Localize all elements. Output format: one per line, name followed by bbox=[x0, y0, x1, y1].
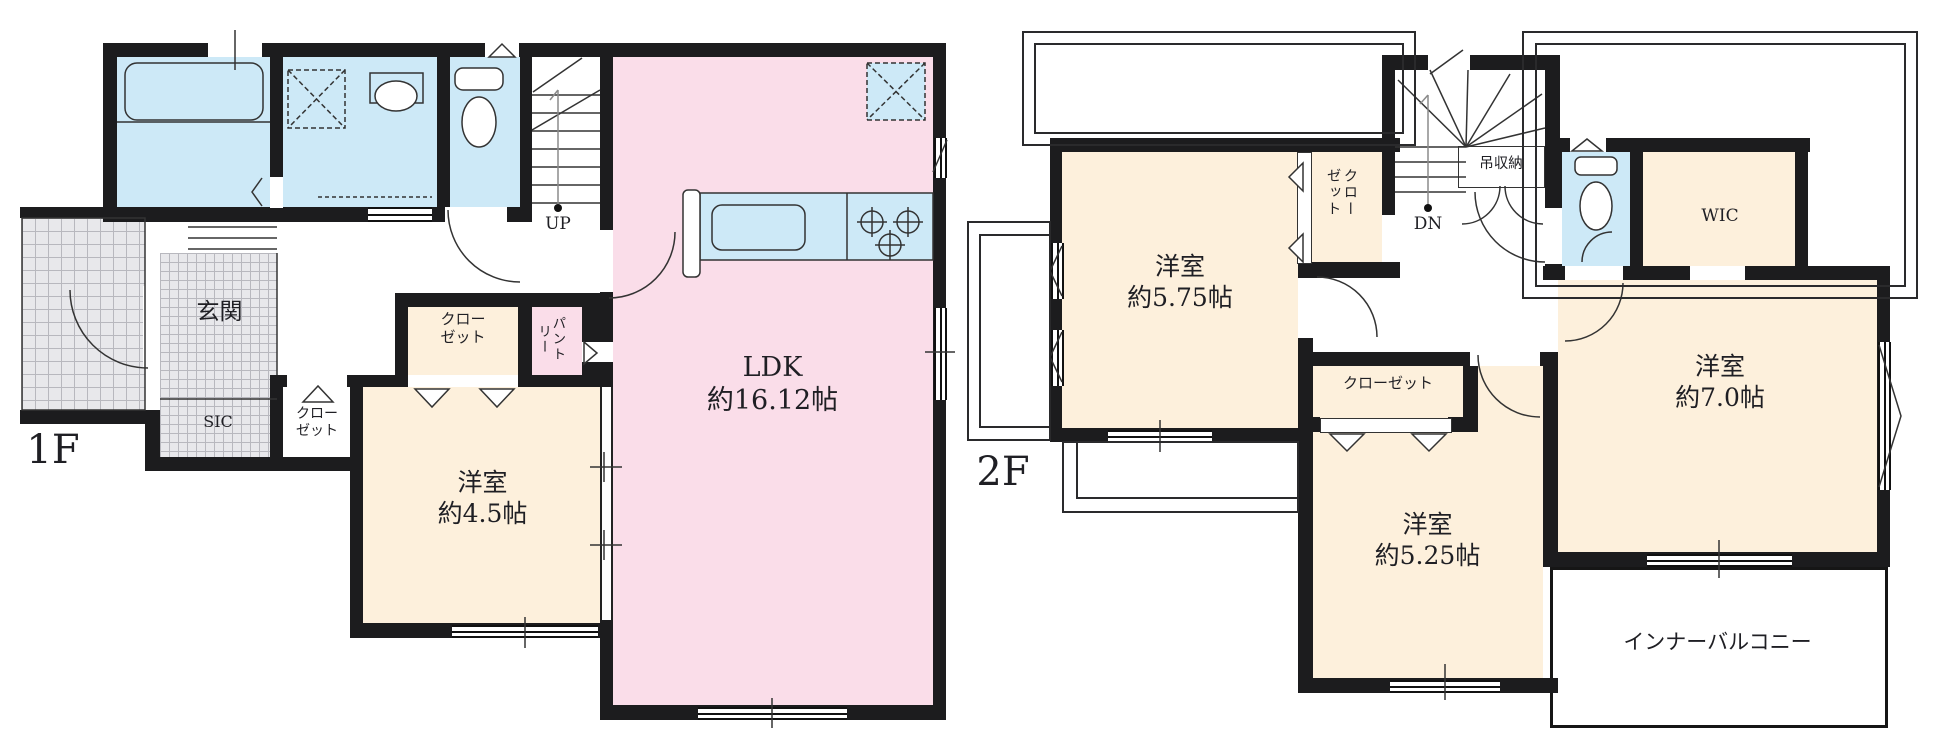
room45-closet-label: クロー ゼット bbox=[408, 310, 518, 347]
floor-2-label: 2F bbox=[968, 448, 1038, 497]
wall bbox=[1448, 417, 1478, 432]
closet575-label: クローゼット bbox=[1324, 162, 1357, 224]
room45-label: 洋室 約4.5帖 bbox=[395, 468, 570, 529]
door-opening bbox=[1298, 278, 1312, 338]
sliding-door bbox=[368, 207, 432, 222]
door-opening bbox=[600, 230, 613, 292]
room525-label: 洋室 約5.25帖 bbox=[1340, 510, 1515, 571]
window bbox=[934, 138, 947, 178]
window bbox=[452, 625, 598, 638]
stairs-dn-label: DN bbox=[1398, 214, 1458, 235]
inner-balcony-label: インナーバルコニー bbox=[1585, 630, 1850, 656]
sliding-partition bbox=[600, 387, 613, 620]
window bbox=[1647, 554, 1792, 567]
window bbox=[485, 43, 519, 57]
hall-closet-label: クロー ゼット bbox=[281, 406, 353, 440]
wall bbox=[20, 207, 150, 218]
hanging-storage-doors bbox=[1462, 186, 1543, 224]
vent-window bbox=[1570, 138, 1606, 152]
room70-label: 洋室 約7.0帖 bbox=[1630, 352, 1810, 413]
room-yoshitsu-70 bbox=[1558, 280, 1877, 552]
door-leaf bbox=[143, 286, 158, 368]
toilet2f-door-arc bbox=[1475, 192, 1545, 262]
hanging-storage-label: 吊収納 bbox=[1459, 156, 1543, 174]
closet-door bbox=[408, 375, 518, 387]
closet-door bbox=[287, 375, 347, 387]
pantry-door bbox=[582, 342, 613, 362]
stairs-1f-icon bbox=[532, 58, 600, 212]
wall bbox=[1543, 352, 1558, 567]
wall bbox=[1050, 138, 1400, 152]
wall bbox=[518, 293, 532, 375]
wall bbox=[520, 57, 532, 208]
room575-label: 洋室 約5.75帖 bbox=[1090, 252, 1270, 313]
floor-1-label: 1F bbox=[18, 426, 88, 475]
door-opening bbox=[445, 207, 507, 222]
wall bbox=[1382, 55, 1395, 215]
room575-door-arc bbox=[1317, 277, 1377, 337]
pantry-label: パントリー bbox=[536, 310, 564, 368]
sic-label: SIC bbox=[168, 412, 268, 432]
wall bbox=[1545, 152, 1562, 208]
door-opening bbox=[1470, 352, 1540, 366]
window bbox=[1108, 430, 1212, 443]
wall bbox=[600, 292, 613, 375]
wall bbox=[20, 410, 160, 424]
door-opening bbox=[1690, 266, 1745, 280]
wall bbox=[270, 375, 287, 387]
window bbox=[1878, 342, 1891, 490]
door-opening bbox=[270, 177, 283, 208]
closet-door bbox=[1297, 152, 1312, 264]
door-opening bbox=[1565, 266, 1623, 280]
room-porch bbox=[22, 218, 145, 410]
window bbox=[1428, 55, 1470, 70]
wall bbox=[1630, 152, 1643, 266]
closet-fold-mark bbox=[303, 386, 333, 402]
wall bbox=[103, 43, 117, 208]
wic-label: WIC bbox=[1675, 206, 1765, 227]
room-toilet-2f bbox=[1562, 152, 1630, 266]
window bbox=[1051, 243, 1064, 299]
ldk-label: LDK 約16.12帖 bbox=[660, 352, 885, 418]
wall bbox=[1298, 417, 1320, 432]
room-toilet-1f bbox=[450, 57, 520, 207]
window bbox=[1390, 680, 1500, 693]
stairs-2f-icon bbox=[1395, 70, 1545, 212]
wall bbox=[145, 457, 353, 471]
kitchen-counter bbox=[700, 193, 933, 260]
window bbox=[1051, 330, 1064, 386]
closet-door bbox=[1320, 418, 1452, 433]
wall bbox=[1298, 264, 1312, 278]
wall bbox=[437, 57, 450, 208]
wall bbox=[395, 293, 408, 387]
floorplan-canvas: 1F 玄関 SIC クロー ゼット クロー ゼット パントリー UP LDK 約… bbox=[0, 0, 1939, 753]
wall bbox=[1795, 152, 1808, 280]
wall bbox=[1463, 366, 1478, 417]
wall bbox=[1298, 338, 1313, 693]
wall bbox=[1312, 262, 1400, 278]
refrigerator-space bbox=[867, 63, 925, 120]
genkan-label: 玄関 bbox=[162, 298, 277, 326]
closet525-label: クローゼット bbox=[1318, 374, 1458, 392]
wall bbox=[395, 293, 613, 307]
wall bbox=[1382, 55, 1560, 70]
wall bbox=[600, 57, 613, 230]
room-bathroom bbox=[117, 57, 270, 207]
window bbox=[698, 707, 847, 720]
stairs-up-label: UP bbox=[536, 214, 580, 235]
window bbox=[934, 308, 947, 400]
room-washroom bbox=[283, 57, 437, 207]
door-opening bbox=[1548, 208, 1562, 264]
window bbox=[208, 43, 262, 57]
